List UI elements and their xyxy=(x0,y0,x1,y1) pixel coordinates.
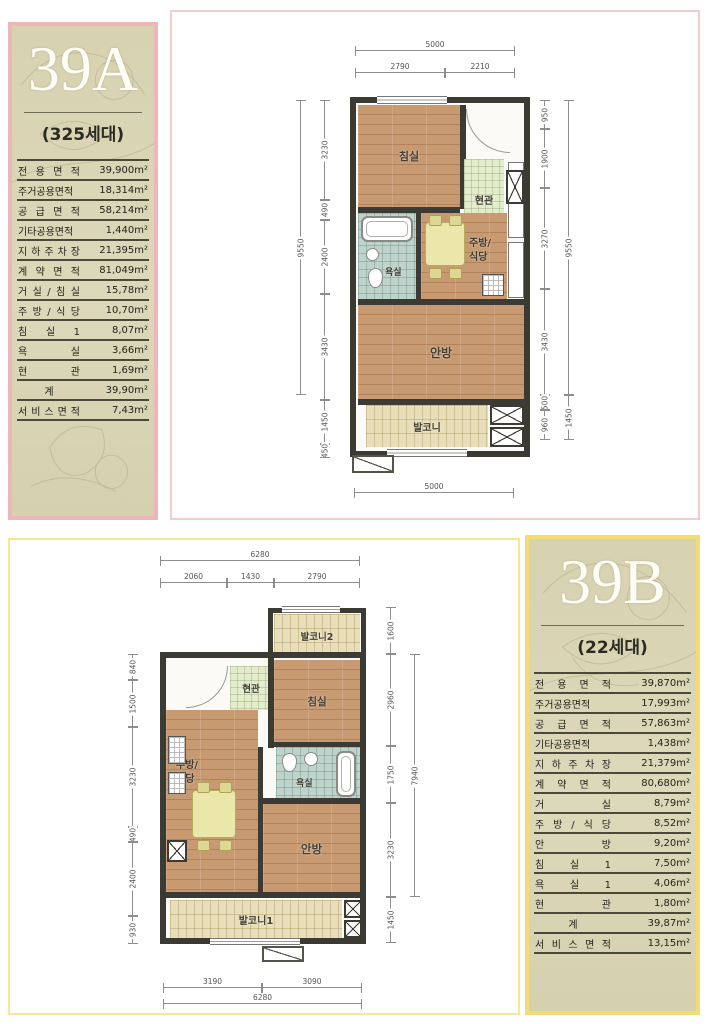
chair xyxy=(197,782,210,793)
row-label: 현 관 xyxy=(18,363,80,378)
unit-households-39b: (22세대) xyxy=(529,633,696,658)
table-row: 공 급 면 적57,863m² xyxy=(534,714,691,734)
dim-top-seg: 1430 xyxy=(227,582,274,583)
window xyxy=(210,938,300,945)
brochure-page: 39A (325세대) 전 용 면 적39,900m² 주거공용면적18,314… xyxy=(0,0,709,1024)
row-value: 3,66m² xyxy=(112,345,148,356)
row-label: 계 xyxy=(535,916,611,931)
row-value: 21,395m² xyxy=(99,245,148,256)
row-label: 전 용 면 적 xyxy=(18,163,80,178)
dim-right-seg: 2960 xyxy=(390,654,391,746)
row-label: 계 xyxy=(18,383,80,398)
row-label: 침 실 1 xyxy=(18,323,80,338)
row-value: 58,214m² xyxy=(99,205,148,216)
dim-right-seg: 960 xyxy=(544,410,545,440)
row-label: 주 방 / 식 당 xyxy=(18,303,80,318)
window xyxy=(377,96,447,104)
hatched-service-box xyxy=(490,405,524,425)
row-label: 기타공용면적 xyxy=(535,736,611,751)
table-row: 서 비 스 면 적7,43m² xyxy=(17,401,149,421)
kitchen-counter xyxy=(508,242,524,298)
bedroom-room: 침실 xyxy=(358,105,460,207)
table-row: 계 약 면 적81,049m² xyxy=(17,261,149,281)
row-value: 80,680m² xyxy=(641,778,690,789)
sink-counter-grid xyxy=(168,736,186,764)
dim-top-seg: 2060 xyxy=(160,582,227,583)
row-label: 주거공용면적 xyxy=(535,696,611,711)
row-value: 1,69m² xyxy=(112,365,148,376)
row-value: 1,440m² xyxy=(106,225,148,236)
dining-table xyxy=(192,790,236,838)
chair xyxy=(429,268,442,279)
row-label: 계 약 면 적 xyxy=(535,776,611,791)
row-value: 8,52m² xyxy=(654,818,690,829)
row-label: 기타공용면적 xyxy=(18,223,80,238)
dim-right-seg: 3270 xyxy=(544,188,545,289)
dim-bottom-total: 6280 xyxy=(163,1003,362,1004)
dim-bottom-seg: 3090 xyxy=(262,987,362,988)
dim-left-seg: 840 xyxy=(132,654,133,680)
row-label: 주 방 / 식 당 xyxy=(535,816,611,831)
row-label: 계 약 면 적 xyxy=(18,263,80,278)
row-value: 39,900m² xyxy=(99,165,148,176)
table-row: 기타공용면적1,440m² xyxy=(17,221,149,241)
table-row: 안 방9,20m² xyxy=(534,834,691,854)
row-value: 15,78m² xyxy=(106,285,148,296)
row-label: 현 관 xyxy=(535,896,611,911)
row-label: 공 급 면 적 xyxy=(18,203,80,218)
table-row: 주 방 / 식 당8,52m² xyxy=(534,814,691,834)
unit-39b-info-panel: 39B (22세대) 전 용 면 적39,870m² 주거공용면적17,993m… xyxy=(525,535,700,1015)
dim-right-seg: 500 xyxy=(544,395,545,410)
chair xyxy=(219,840,232,851)
stove-grid xyxy=(168,772,186,794)
chair xyxy=(219,782,232,793)
dim-top-total: 6280 xyxy=(160,560,360,561)
dim-left-seg: 450 xyxy=(324,444,325,458)
bedroom-room: 침실 xyxy=(274,660,360,742)
balcony-room: 발코니 xyxy=(366,405,488,447)
hatched-service-box xyxy=(167,840,187,862)
dim-left-seg: 3230 xyxy=(324,100,325,200)
table-row: 주거공용면적18,314m² xyxy=(17,181,149,201)
table-row: 현 관1,69m² xyxy=(17,361,149,381)
row-value: 57,863m² xyxy=(641,718,690,729)
bathroom-label: 욕실 xyxy=(296,776,313,789)
interior-wall xyxy=(166,892,360,898)
dim-left-total: 9550 xyxy=(300,100,301,395)
chair xyxy=(449,268,462,279)
row-value: 39,870m² xyxy=(641,678,690,689)
table-row: 전 용 면 적39,870m² xyxy=(534,674,691,694)
table-row-total: 계39,87m² xyxy=(534,914,691,934)
row-value: 4,06m² xyxy=(654,878,690,889)
row-label: 지 하 주 차 장 xyxy=(535,756,611,771)
table-row: 기타공용면적1,438m² xyxy=(534,734,691,754)
dim-right-seg: 3430 xyxy=(544,289,545,395)
hatched-service-box xyxy=(344,920,362,938)
ac-ledge xyxy=(262,946,304,962)
dim-top-seg: 2790 xyxy=(274,582,360,583)
row-label: 주거공용면적 xyxy=(18,183,80,198)
dim-left-seg: 2400 xyxy=(132,842,133,916)
row-label: 지 하 주 차 장 xyxy=(18,243,80,258)
area-table-39a: 전 용 면 적39,900m² 주거공용면적18,314m² 공 급 면 적58… xyxy=(17,159,149,421)
ac-ledge xyxy=(352,455,394,473)
chair xyxy=(429,215,442,226)
unit-code-39b: 39B xyxy=(529,539,696,625)
dim-left-seg: 490 xyxy=(132,827,133,842)
hatched-service-box xyxy=(490,427,524,447)
row-label: 서 비 스 면 적 xyxy=(535,936,611,951)
divider xyxy=(541,625,684,626)
row-label: 욕 실 1 xyxy=(535,876,611,891)
dim-left-seg: 930 xyxy=(132,916,133,944)
dim-top-total: 5000 xyxy=(355,50,515,51)
unit-households-39a: (325세대) xyxy=(12,120,154,145)
unit-code-39a: 39A xyxy=(12,26,154,112)
unit-39a-info-panel: 39A (325세대) 전 용 면 적39,900m² 주거공용면적18,314… xyxy=(8,22,158,520)
balcony1-room: 발코니1 xyxy=(170,900,342,938)
table-row: 주 방 / 식 당10,70m² xyxy=(17,301,149,321)
table-row: 지 하 주 차 장21,379m² xyxy=(534,754,691,774)
dim-left-seg: 1450 xyxy=(324,400,325,444)
dim-left-seg: 3430 xyxy=(324,294,325,400)
chair xyxy=(449,215,462,226)
row-value: 9,20m² xyxy=(654,838,690,849)
bathtub xyxy=(336,751,356,797)
window xyxy=(282,606,340,613)
dim-bottom-seg: 3190 xyxy=(163,987,262,988)
table-row: 욕 실 14,06m² xyxy=(534,874,691,894)
table-row: 욕 실3,66m² xyxy=(17,341,149,361)
dim-right-seg: 1900 xyxy=(544,129,545,188)
row-value: 7,50m² xyxy=(654,858,690,869)
table-row: 계 약 면 적80,680m² xyxy=(534,774,691,794)
row-value: 8,07m² xyxy=(112,325,148,336)
floorplan-39b: 6280 2060 1430 2790 840 1500 3230 490 24… xyxy=(10,540,518,1013)
dim-left-seg: 490 xyxy=(324,200,325,220)
row-value: 1,80m² xyxy=(654,898,690,909)
chair xyxy=(197,840,210,851)
kitchen-label-line2: 식당 xyxy=(469,248,487,263)
dining-table xyxy=(425,222,465,266)
sink xyxy=(304,752,318,766)
row-value: 8,79m² xyxy=(654,798,690,809)
dim-left-seg: 3230 xyxy=(132,727,133,827)
dim-right-total: 7940 xyxy=(414,654,415,897)
row-label: 침 실 1 xyxy=(535,856,611,871)
row-value: 18,314m² xyxy=(99,185,148,196)
dim-right-seg: 1600 xyxy=(390,607,391,654)
floorplan-39a: 5000 2790 2210 9550 3230 490 2400 3430 1… xyxy=(172,12,698,518)
table-row-total: 계39,90m² xyxy=(17,381,149,401)
unit-39b-plan-panel: 6280 2060 1430 2790 840 1500 3230 490 24… xyxy=(8,538,520,1015)
row-label: 욕 실 xyxy=(18,343,80,358)
unit-39a-plan-panel: 5000 2790 2210 9550 3230 490 2400 3430 1… xyxy=(170,10,700,520)
window xyxy=(387,449,467,457)
dim-right-total: 9550 xyxy=(568,100,569,395)
table-row: 서 비 스 면 적13,15m² xyxy=(534,934,691,954)
bathtub xyxy=(361,216,413,242)
dim-right-seg: 1750 xyxy=(390,746,391,803)
table-row: 현 관1,80m² xyxy=(534,894,691,914)
row-value: 10,70m² xyxy=(106,305,148,316)
appliance-grid xyxy=(482,274,504,296)
dim-left-seg: 2400 xyxy=(324,220,325,294)
row-value: 13,15m² xyxy=(648,938,690,949)
entry-room: 현관 xyxy=(230,666,272,710)
row-value: 7,43m² xyxy=(112,405,148,416)
divider xyxy=(24,112,142,113)
dim-right-seg: 950 xyxy=(544,100,545,129)
row-value: 81,049m² xyxy=(99,265,148,276)
row-value: 1,438m² xyxy=(648,738,690,749)
table-row: 거 실 / 침 실15,78m² xyxy=(17,281,149,301)
bathroom-label: 욕실 xyxy=(385,265,402,278)
sink xyxy=(366,248,379,261)
table-row: 침 실 17,50m² xyxy=(534,854,691,874)
row-value: 17,993m² xyxy=(641,698,690,709)
row-label: 안 방 xyxy=(535,836,611,851)
row-value: 21,379m² xyxy=(641,758,690,769)
table-row: 침 실 18,07m² xyxy=(17,321,149,341)
row-label: 서 비 스 면 적 xyxy=(18,403,80,418)
dim-top-left: 2790 xyxy=(355,72,445,73)
table-row: 주거공용면적17,993m² xyxy=(534,694,691,714)
table-row: 거 실8,79m² xyxy=(534,794,691,814)
master-bedroom-room: 안방 xyxy=(358,305,524,399)
row-label: 거 실 / 침 실 xyxy=(18,283,80,298)
row-value: 39,87m² xyxy=(648,918,690,929)
hatched-service-box xyxy=(344,900,362,918)
row-label: 거 실 xyxy=(535,796,611,811)
dim-right-seg: 1450 xyxy=(390,897,391,943)
area-table-39b: 전 용 면 적39,870m² 주거공용면적17,993m² 공 급 면 적57… xyxy=(534,672,691,954)
master-bedroom-room: 안방 xyxy=(263,804,360,894)
row-value: 39,90m² xyxy=(106,385,148,396)
dim-left-seg: 1500 xyxy=(132,680,133,727)
table-row: 전 용 면 적39,900m² xyxy=(17,161,149,181)
row-label: 공 급 면 적 xyxy=(535,716,611,731)
dim-right-outer: 1450 xyxy=(568,395,569,440)
dim-top-right: 2210 xyxy=(445,72,515,73)
row-label: 전 용 면 적 xyxy=(535,676,611,691)
kitchen-label-line1: 주방/ xyxy=(469,234,491,249)
table-row: 공 급 면 적58,214m² xyxy=(17,201,149,221)
dim-bottom-total: 5000 xyxy=(354,492,514,493)
hatched-shaft-box xyxy=(506,170,524,204)
dim-right-seg: 3230 xyxy=(390,803,391,897)
table-row: 지 하 주 차 장21,395m² xyxy=(17,241,149,261)
